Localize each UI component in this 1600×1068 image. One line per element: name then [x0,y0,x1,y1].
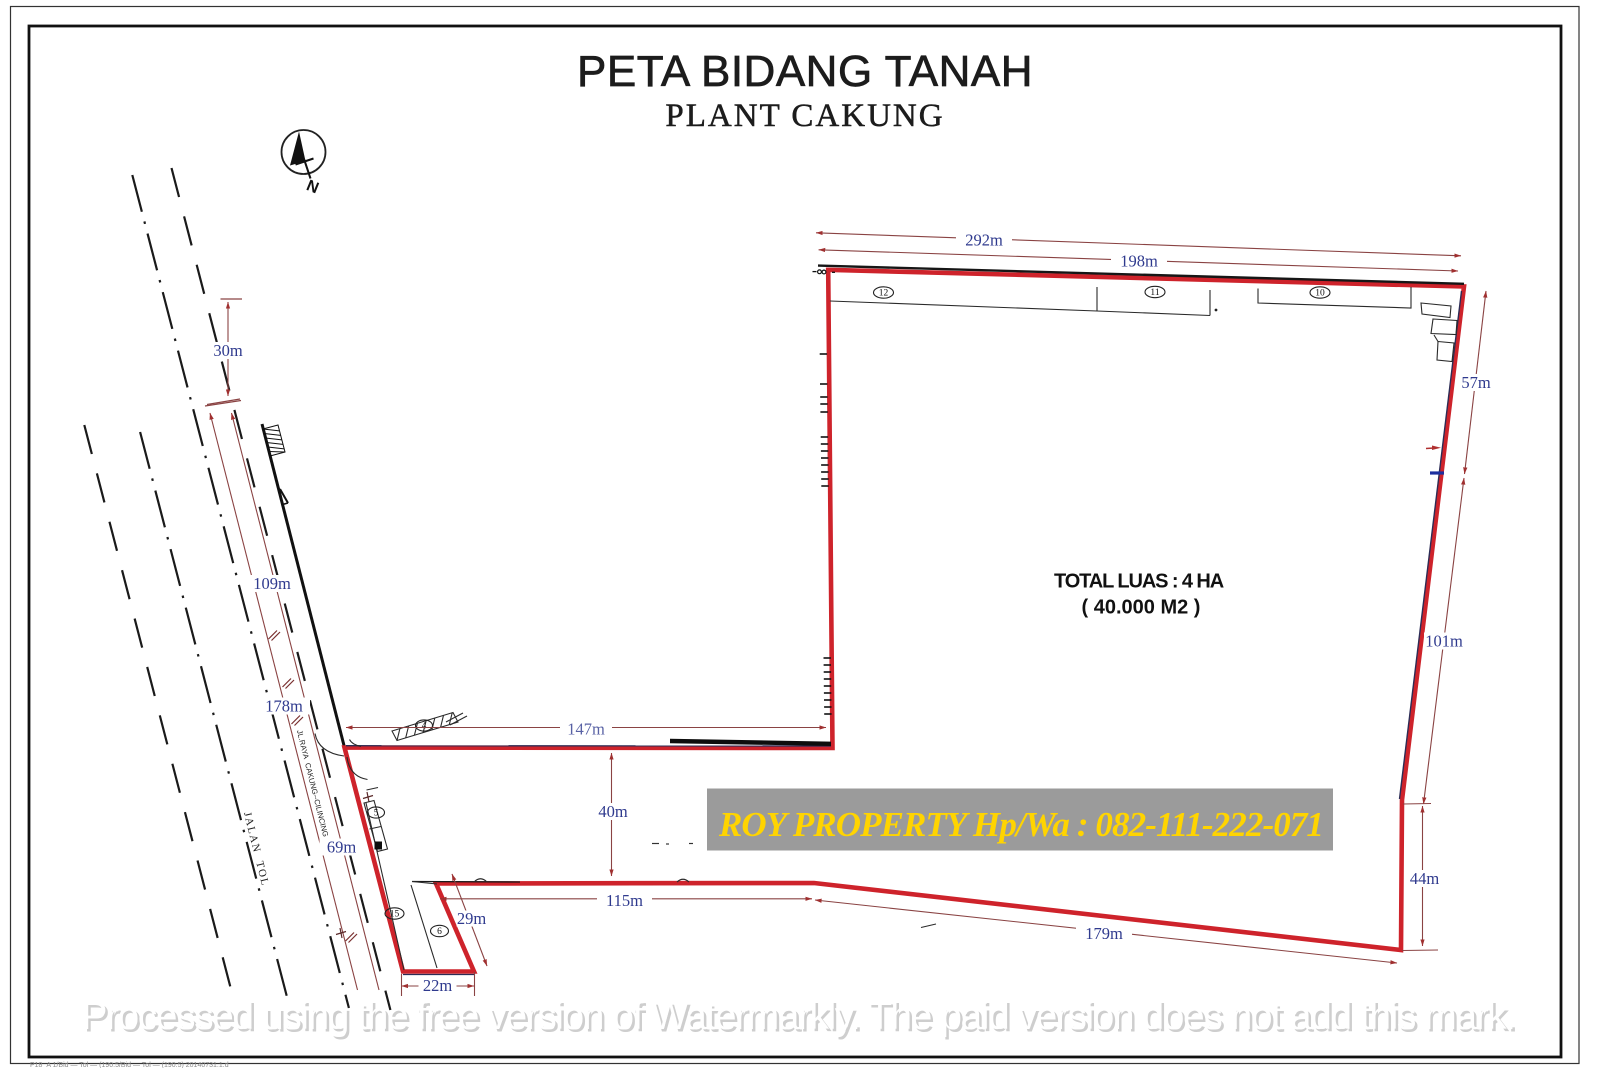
svg-text:( 40.000 M2 ): ( 40.000 M2 ) [1082,597,1201,619]
svg-text:40m: 40m [598,802,628,821]
svg-text:57m: 57m [1461,373,1491,392]
svg-text:147m: 147m [567,720,605,739]
svg-text:15: 15 [390,910,400,920]
svg-text:PLANT CAKUNG: PLANT CAKUNG [665,98,944,134]
svg-text:10: 10 [1315,289,1325,299]
svg-text:6: 6 [437,927,442,937]
svg-text:Processed using the free versi: Processed using the free version of Wate… [81,995,1514,1038]
svg-text:30m: 30m [213,341,243,360]
svg-text:101m: 101m [1425,632,1463,651]
svg-text:TOTAL LUAS : 4 HA: TOTAL LUAS : 4 HA [1054,571,1224,593]
svg-text:11: 11 [1150,288,1159,298]
svg-text:5: 5 [374,808,379,818]
svg-text:115m: 115m [606,891,643,910]
svg-text:198m: 198m [1120,252,1158,271]
svg-text:179m: 179m [1085,924,1123,943]
svg-text:29m: 29m [457,909,487,928]
svg-text:4: 4 [422,721,427,731]
svg-text:22m: 22m [423,976,453,995]
svg-text:P18_A 1/Bid — Tol — (190.5/Bid: P18_A 1/Bid — Tol — (190.5/Bid — Tol — (… [30,1062,229,1068]
svg-text:PETA BIDANG TANAH: PETA BIDANG TANAH [577,47,1033,96]
svg-text:ROY PROPERTY Hp/Wa : 082-111-2: ROY PROPERTY Hp/Wa : 082-111-222-071 [718,805,1323,844]
svg-text:69m: 69m [327,838,357,857]
svg-text:12: 12 [879,289,889,299]
svg-text:109m: 109m [253,574,291,593]
svg-text:44m: 44m [1410,869,1440,888]
svg-text:178m: 178m [265,697,303,716]
svg-text:292m: 292m [965,231,1003,250]
